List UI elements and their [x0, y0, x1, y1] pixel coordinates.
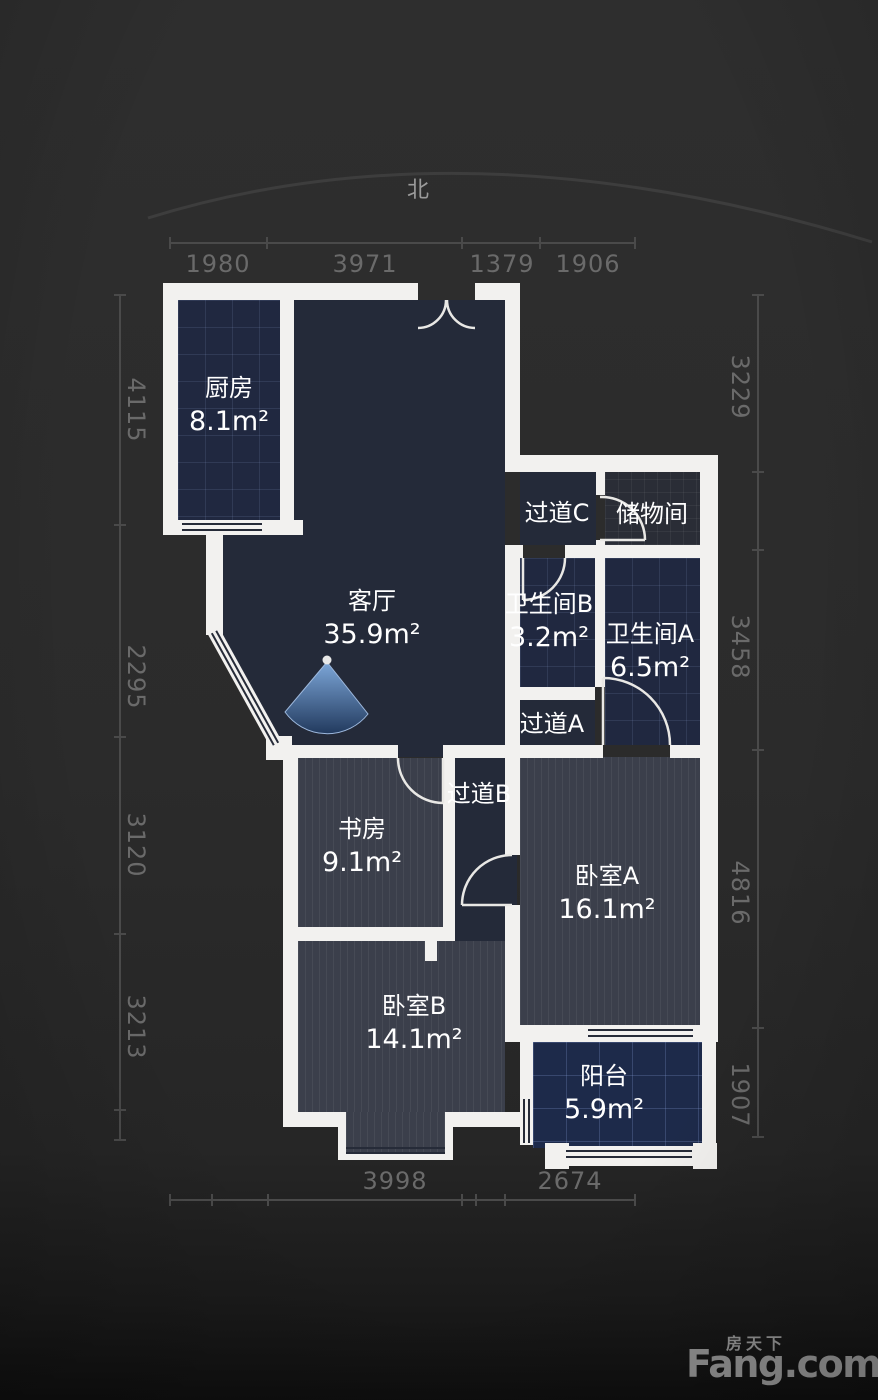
- wall: [595, 558, 605, 687]
- dim-right-2: 4816: [726, 860, 754, 925]
- room-area: 14.1m²: [365, 1022, 462, 1058]
- wall: [505, 300, 520, 472]
- bath-a-door-arc: [603, 678, 670, 745]
- wall: [280, 300, 294, 535]
- room-name: 阳台: [564, 1060, 644, 1092]
- dim-right-1: 3458: [726, 614, 754, 679]
- wall: [425, 941, 437, 961]
- room-area: 5.9m²: [564, 1092, 644, 1128]
- dim-right-0: 3229: [726, 354, 754, 419]
- wall: [283, 745, 298, 941]
- room-name: 过道C: [525, 497, 590, 529]
- dim-bottom-0: 3998: [362, 1167, 427, 1195]
- room-name: 卧室B: [365, 990, 462, 1022]
- dim-top-0: 1980: [185, 250, 250, 278]
- room-label-corridor-c: 过道C: [525, 497, 590, 529]
- room-area: 35.9m²: [323, 617, 420, 653]
- study-door-arc: [398, 758, 443, 803]
- wall: [283, 1112, 346, 1127]
- dim-left-0: 4115: [122, 377, 150, 442]
- viewpoint-dot: [323, 656, 332, 665]
- wall: [283, 927, 455, 941]
- north-label: 北: [407, 172, 429, 204]
- wall: [565, 545, 718, 558]
- room-name: 书房: [322, 813, 402, 845]
- room-area: 6.5m²: [606, 650, 694, 686]
- window-band: [520, 1097, 533, 1145]
- wall: [505, 687, 595, 700]
- wall: [206, 535, 223, 635]
- bedroom-a-door-arc: [462, 855, 512, 905]
- room-name: 过道B: [447, 778, 511, 810]
- dim-top-1: 3971: [332, 250, 397, 278]
- room-name: 卫生间A: [606, 618, 694, 650]
- north-arc: [148, 173, 872, 242]
- room-label-balcony: 阳台 5.9m²: [564, 1060, 644, 1129]
- room-name: 卫生间B: [505, 588, 593, 620]
- logo-en-text: Fang.com: [686, 1342, 878, 1386]
- room-area: 16.1m²: [558, 892, 655, 928]
- dim-top-3: 1906: [555, 250, 620, 278]
- wall: [505, 1025, 718, 1042]
- room-area: 8.1m²: [189, 404, 269, 440]
- wall: [505, 905, 520, 1042]
- room-area: 3.2m²: [505, 620, 593, 656]
- dim-left-2: 3120: [122, 812, 150, 877]
- dim-right-3: 1907: [726, 1062, 754, 1127]
- wall: [443, 745, 603, 758]
- room-name: 过道A: [520, 708, 584, 740]
- room-label-kitchen: 厨房 8.1m²: [189, 372, 269, 441]
- wall: [283, 941, 298, 1112]
- wall: [505, 545, 523, 558]
- wall: [596, 472, 605, 495]
- dim-top-2: 1379: [469, 250, 534, 278]
- wall: [445, 1112, 520, 1127]
- room-label-living: 客厅 35.9m²: [323, 585, 420, 654]
- wall: [520, 1042, 533, 1097]
- wall: [702, 1042, 716, 1152]
- room-area: 9.1m²: [322, 845, 402, 881]
- room-name: 卧室A: [558, 860, 655, 892]
- room-label-bedroom-b: 卧室B 14.1m²: [365, 990, 462, 1059]
- room-label-bath-a: 卫生间A 6.5m²: [606, 618, 694, 687]
- wall: [475, 283, 520, 300]
- room-label-corridor-a: 过道A: [520, 708, 584, 740]
- room-label-study: 书房 9.1m²: [322, 813, 402, 882]
- dim-left-1: 2295: [122, 644, 150, 709]
- dim-bottom-1: 2674: [537, 1167, 602, 1195]
- dim-left-3: 3213: [122, 994, 150, 1059]
- wall: [163, 283, 418, 300]
- wall: [518, 455, 718, 472]
- room-label-storage: 储物间: [616, 498, 688, 530]
- floor-plan: 北 厨房 8.1m² 客厅 35.9m² 过道C 储物间 卫生间B 3.2m² …: [0, 0, 878, 1400]
- room-name: 储物间: [616, 498, 688, 530]
- room-label-bedroom-a: 卧室A 16.1m²: [558, 860, 655, 929]
- wall: [163, 283, 178, 535]
- room-label-bath-b: 卫生间B 3.2m²: [505, 588, 593, 657]
- fang-logo: 房天下 Fang.com: [686, 1330, 871, 1390]
- wall: [700, 455, 718, 1042]
- room-name: 厨房: [189, 372, 269, 404]
- room-label-corridor-b: 过道B: [447, 778, 511, 810]
- room-name: 客厅: [323, 585, 420, 617]
